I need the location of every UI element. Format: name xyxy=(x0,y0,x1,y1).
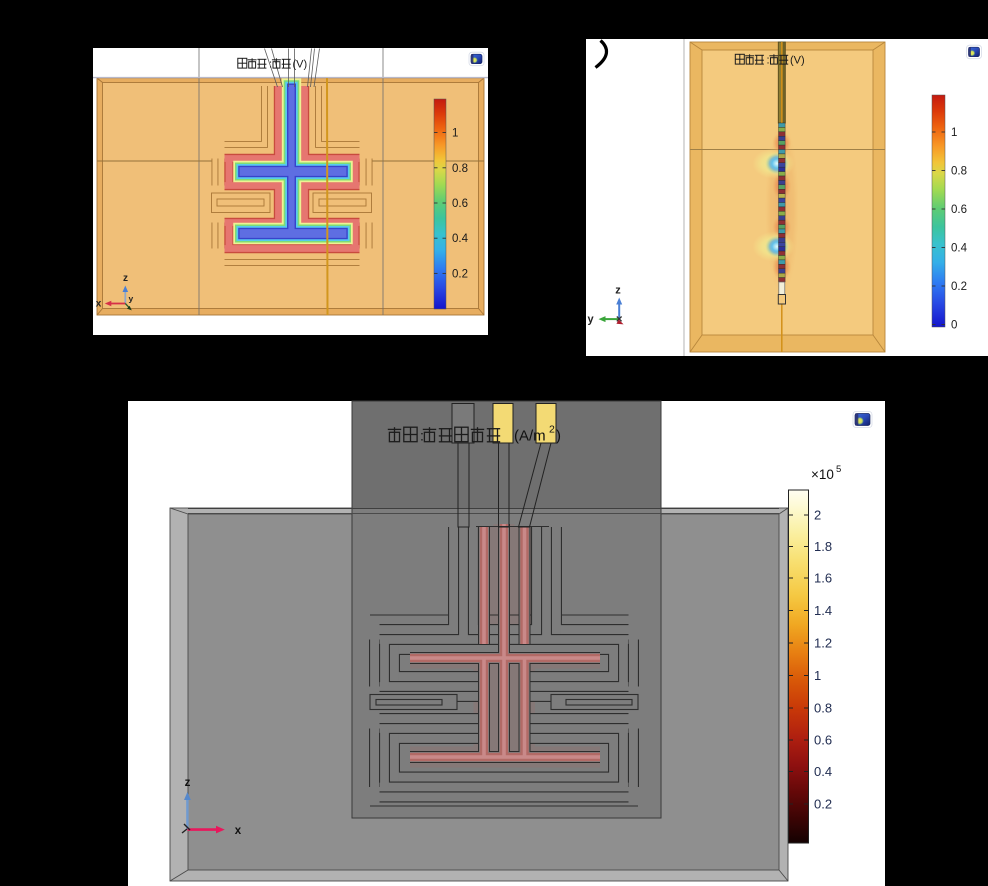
svg-text:0: 0 xyxy=(951,320,957,332)
svg-text:0.6: 0.6 xyxy=(814,733,832,748)
svg-text:0.8: 0.8 xyxy=(951,166,967,178)
svg-text:): ) xyxy=(556,428,561,445)
svg-text:1: 1 xyxy=(814,668,821,683)
svg-text:0.2: 0.2 xyxy=(951,281,967,293)
svg-text:1.4: 1.4 xyxy=(814,603,832,618)
svg-text:(A/m: (A/m xyxy=(514,428,546,445)
svg-text:0.2: 0.2 xyxy=(814,797,832,812)
svg-text:2: 2 xyxy=(549,424,555,436)
svg-text:1: 1 xyxy=(452,128,458,140)
svg-text:0.8: 0.8 xyxy=(452,163,468,175)
svg-text:z: z xyxy=(615,285,621,297)
svg-text:1: 1 xyxy=(951,127,957,139)
svg-text:0.6: 0.6 xyxy=(951,204,967,216)
svg-text:0.4: 0.4 xyxy=(452,233,469,245)
svg-text:z: z xyxy=(185,777,191,789)
svg-text:x: x xyxy=(96,299,102,310)
svg-text:z: z xyxy=(123,273,128,284)
svg-text:1.2: 1.2 xyxy=(814,636,832,651)
svg-text:(V): (V) xyxy=(790,55,805,67)
svg-text::: : xyxy=(767,55,770,67)
svg-text:x: x xyxy=(235,825,242,837)
svg-text:y: y xyxy=(129,294,134,304)
svg-text:0.4: 0.4 xyxy=(951,243,968,255)
svg-text:×10: ×10 xyxy=(811,467,834,482)
svg-text:1.8: 1.8 xyxy=(814,539,832,554)
svg-text:5: 5 xyxy=(836,464,841,475)
svg-text:0.2: 0.2 xyxy=(452,268,468,280)
svg-text:0.8: 0.8 xyxy=(814,701,832,716)
svg-text:y: y xyxy=(587,314,594,326)
svg-text:0.4: 0.4 xyxy=(814,764,832,779)
svg-text:2: 2 xyxy=(814,508,821,523)
svg-text::: : xyxy=(269,59,272,71)
svg-text:(V): (V) xyxy=(293,59,308,71)
svg-text:0.6: 0.6 xyxy=(452,198,468,210)
svg-text:1.6: 1.6 xyxy=(814,571,832,586)
